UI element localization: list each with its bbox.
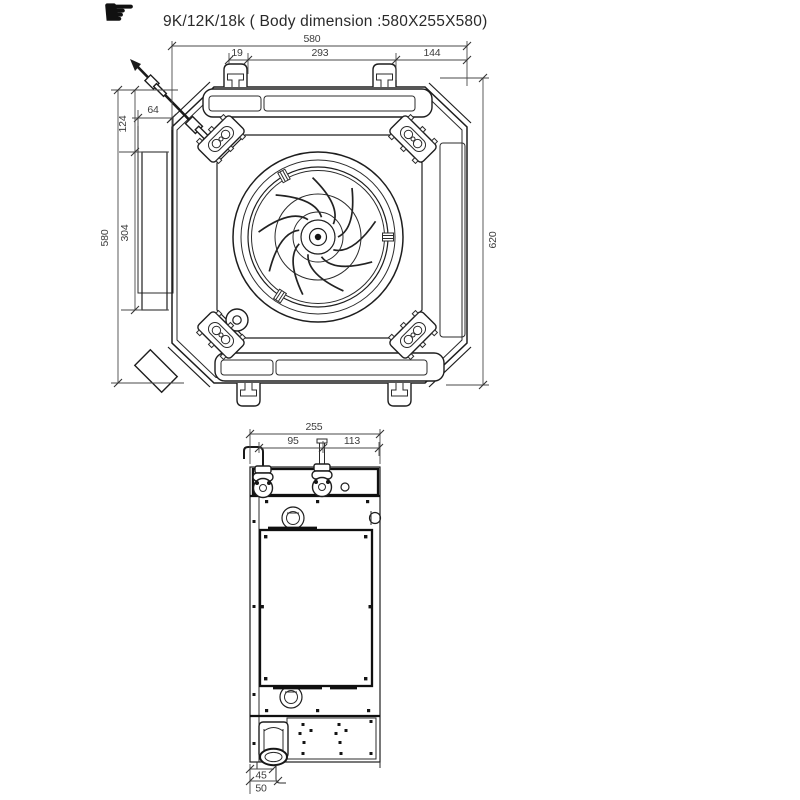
corner-bracket-top-right bbox=[386, 112, 440, 166]
gas-valve bbox=[244, 447, 273, 498]
bottom-box-dots bbox=[299, 720, 373, 755]
dim-580-left: 580 bbox=[99, 229, 111, 246]
left-panel-inner bbox=[142, 152, 167, 310]
fan-ring-clip bbox=[383, 233, 394, 241]
hanging-bolt bbox=[130, 59, 211, 142]
corner-tab-plate bbox=[135, 350, 177, 392]
side-view: 255 95 113 45 50 bbox=[244, 421, 384, 795]
dim-50: 50 bbox=[255, 783, 267, 795]
drain-pipe bbox=[257, 722, 380, 783]
dim-304: 304 bbox=[119, 224, 131, 241]
hanger-slot-bottom-left bbox=[237, 383, 260, 406]
top-view: 580 19 293 144 64 124 bbox=[99, 33, 499, 406]
dim-255: 255 bbox=[306, 421, 323, 433]
hanger-slot-top-right bbox=[373, 64, 396, 87]
hanger-slot-bottom-right bbox=[388, 383, 411, 406]
small-port-hole bbox=[341, 483, 349, 491]
bottom-box bbox=[287, 718, 376, 759]
turbo-fan bbox=[233, 152, 403, 322]
fan-ring-clip bbox=[278, 169, 290, 182]
dim-113: 113 bbox=[344, 435, 360, 447]
top-grommet bbox=[282, 507, 304, 529]
dim-95: 95 bbox=[287, 435, 299, 447]
access-panel bbox=[260, 528, 372, 688]
dim-124: 124 bbox=[117, 115, 129, 132]
left-panel-outer bbox=[138, 118, 173, 293]
hanger-slot-top-left bbox=[224, 64, 247, 87]
cassette-unit-drawing-page: ☛ 9K/12K/18k ( Body dimension :580X255X5… bbox=[0, 0, 800, 800]
dim-580-top: 580 bbox=[304, 33, 321, 45]
dim-45: 45 bbox=[255, 770, 267, 782]
dim-19: 19 bbox=[231, 47, 243, 59]
dim-620: 620 bbox=[487, 231, 499, 248]
top-vent-bar bbox=[203, 89, 432, 117]
right-panel bbox=[440, 143, 465, 337]
dim-144: 144 bbox=[424, 47, 441, 59]
dim-64: 64 bbox=[147, 104, 159, 116]
corner-bracket-top-left bbox=[194, 112, 248, 166]
right-edge-grommet bbox=[370, 511, 381, 525]
dim-293: 293 bbox=[312, 47, 329, 59]
technical-drawing: 580 19 293 144 64 124 bbox=[0, 0, 800, 800]
